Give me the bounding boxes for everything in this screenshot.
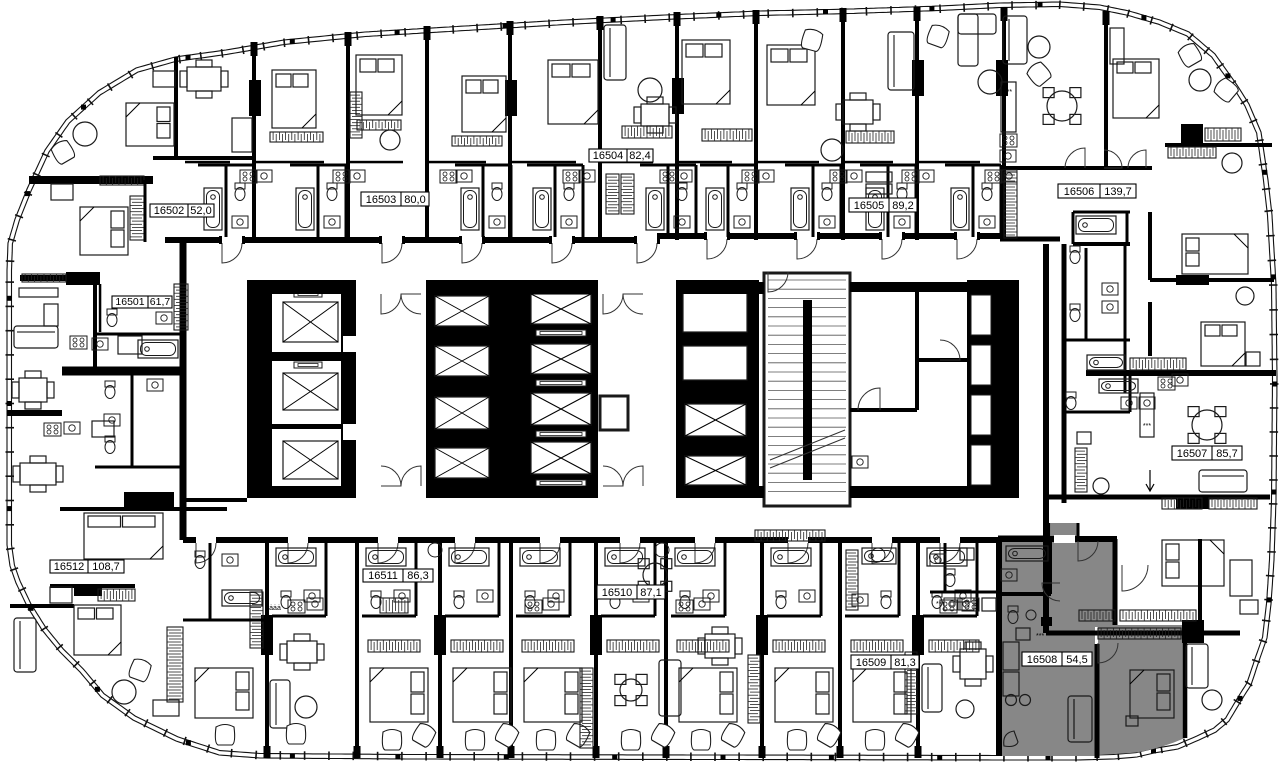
svg-text:61,7: 61,7 (150, 296, 171, 308)
svg-text:***: *** (1036, 633, 1044, 640)
svg-text:54,5: 54,5 (1066, 654, 1087, 666)
svg-text:16510: 16510 (602, 587, 633, 599)
svg-text:16502: 16502 (154, 205, 185, 217)
svg-text:16508: 16508 (1027, 654, 1058, 666)
svg-text:16504: 16504 (593, 150, 624, 162)
svg-text:89,2: 89,2 (892, 200, 913, 212)
svg-text:16509: 16509 (856, 657, 887, 669)
svg-text:86,3: 86,3 (407, 570, 428, 582)
svg-text:139,7: 139,7 (1104, 186, 1132, 198)
svg-text:***: *** (936, 601, 944, 608)
svg-text:***: *** (1004, 89, 1012, 96)
svg-text:16503: 16503 (366, 194, 397, 206)
svg-text:ȧȧȧ: ȧȧȧ (269, 605, 281, 612)
svg-text:82,4: 82,4 (629, 150, 650, 162)
svg-text:16501: 16501 (115, 296, 144, 308)
svg-text:16506: 16506 (1064, 186, 1095, 198)
svg-text:16511: 16511 (368, 570, 398, 582)
svg-text:16512: 16512 (54, 561, 85, 573)
svg-text:108,7: 108,7 (92, 561, 120, 573)
svg-text:87,1: 87,1 (640, 587, 661, 599)
svg-text:81,3: 81,3 (894, 657, 915, 669)
svg-text:80,0: 80,0 (404, 194, 425, 206)
svg-text:52,0: 52,0 (190, 205, 211, 217)
svg-text:16507: 16507 (1177, 448, 1208, 460)
svg-text:16505: 16505 (854, 200, 885, 212)
svg-text:***: *** (1143, 423, 1151, 430)
svg-text:85,7: 85,7 (1216, 448, 1237, 460)
